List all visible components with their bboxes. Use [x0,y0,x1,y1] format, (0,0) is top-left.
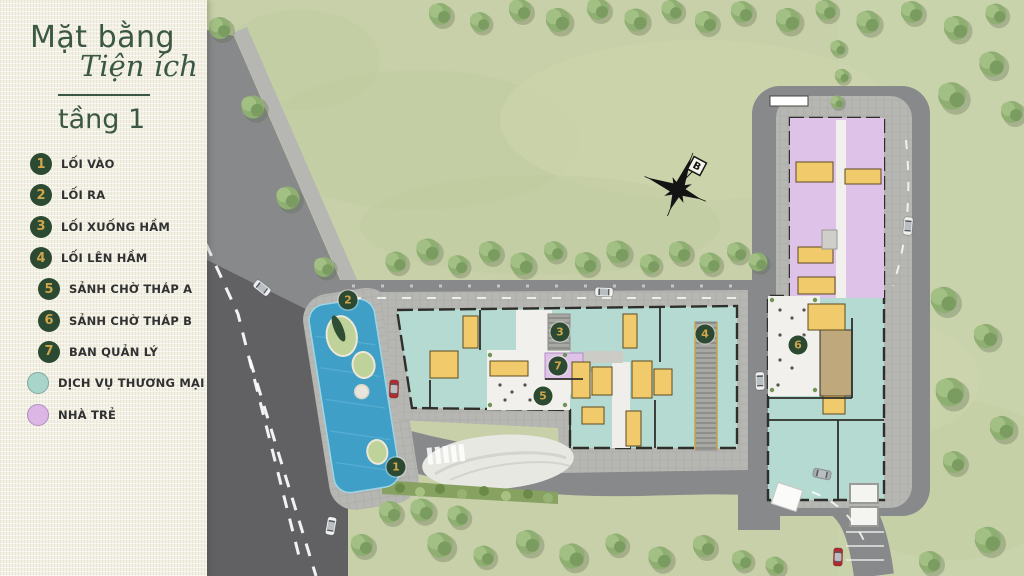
legend-label: NHÀ TRẺ [58,408,116,422]
map-marker-5[interactable]: 5 [534,387,553,406]
car-icon [903,217,914,236]
legend-number-badge: 1 [30,153,52,175]
legend-number-badge: 5 [38,278,60,300]
map-marker-4[interactable]: 4 [696,325,715,344]
legend-label: SẢNH CHỜ THÁP A [69,282,192,296]
map-marker-3[interactable]: 3 [551,323,570,342]
title-divider [58,94,150,96]
legend-item-dich-vu-thuong-mai: DỊCH VỤ THƯƠNG MẠI [0,368,207,399]
site-plan-page: B 1 2 3 4 5 6 7 Mặt bằng Tiện ích tầng 1… [0,0,1024,576]
legend-label: LỐI LÊN HẦM [61,251,147,265]
legend-label: DỊCH VỤ THƯƠNG MẠI [58,376,205,390]
legend-sidebar: Mặt bằng Tiện ích tầng 1 1 LỐI VÀO 2 LỐI… [0,0,207,576]
legend-label: BAN QUẢN LÝ [69,345,158,359]
title-line-2: Tiện ích [80,52,207,81]
legend-item-loi-ra: 2 LỐI RA [0,180,207,211]
legend-label: LỐI RA [61,188,105,202]
legend-number-badge: 2 [30,184,52,206]
legend-number-badge: 6 [38,310,60,332]
legend-item-sanh-cho-thap-b: 6 SẢNH CHỜ THÁP B [0,305,207,336]
commercial-swatch-icon [27,372,49,394]
car-icon [755,372,765,390]
kindergarten-swatch-icon [27,404,49,426]
utility-shed [850,484,878,503]
car-icon [389,380,399,398]
legend-item-sanh-cho-thap-a: 5 SẢNH CHỜ THÁP A [0,274,207,305]
car-icon [833,548,843,566]
floor-label: tầng 1 [58,104,207,135]
legend-item-loi-vao: 1 LỐI VÀO [0,149,207,180]
entry-gate [770,96,808,106]
legend-label: LỐI XUỐNG HẦM [61,220,170,234]
map-marker-6[interactable]: 6 [789,336,808,355]
legend-label: SẢNH CHỜ THÁP B [69,314,192,328]
legend-number-badge: 7 [38,341,60,363]
legend-number-badge: 4 [30,247,52,269]
legend-item-loi-len-ham: 4 LỐI LÊN HẦM [0,242,207,273]
legend-item-nha-tre: NHÀ TRẺ [0,399,207,430]
utility-shed [850,507,878,526]
map-marker-7[interactable]: 7 [549,357,568,376]
legend-list: 1 LỐI VÀO 2 LỐI RA 3 LỐI XUỐNG HẦM 4 LỐI… [0,149,207,431]
legend-number-badge: 3 [30,216,52,238]
legend-item-loi-xuong-ham: 3 LỐI XUỐNG HẦM [0,211,207,242]
legend-label: LỐI VÀO [61,157,115,171]
page-title: Mặt bằng Tiện ích tầng 1 [0,0,207,135]
car-icon [595,287,613,297]
map-marker-1[interactable]: 1 [387,458,406,477]
legend-item-ban-quan-ly: 7 BAN QUẢN LÝ [0,336,207,367]
map-marker-2[interactable]: 2 [339,291,358,310]
